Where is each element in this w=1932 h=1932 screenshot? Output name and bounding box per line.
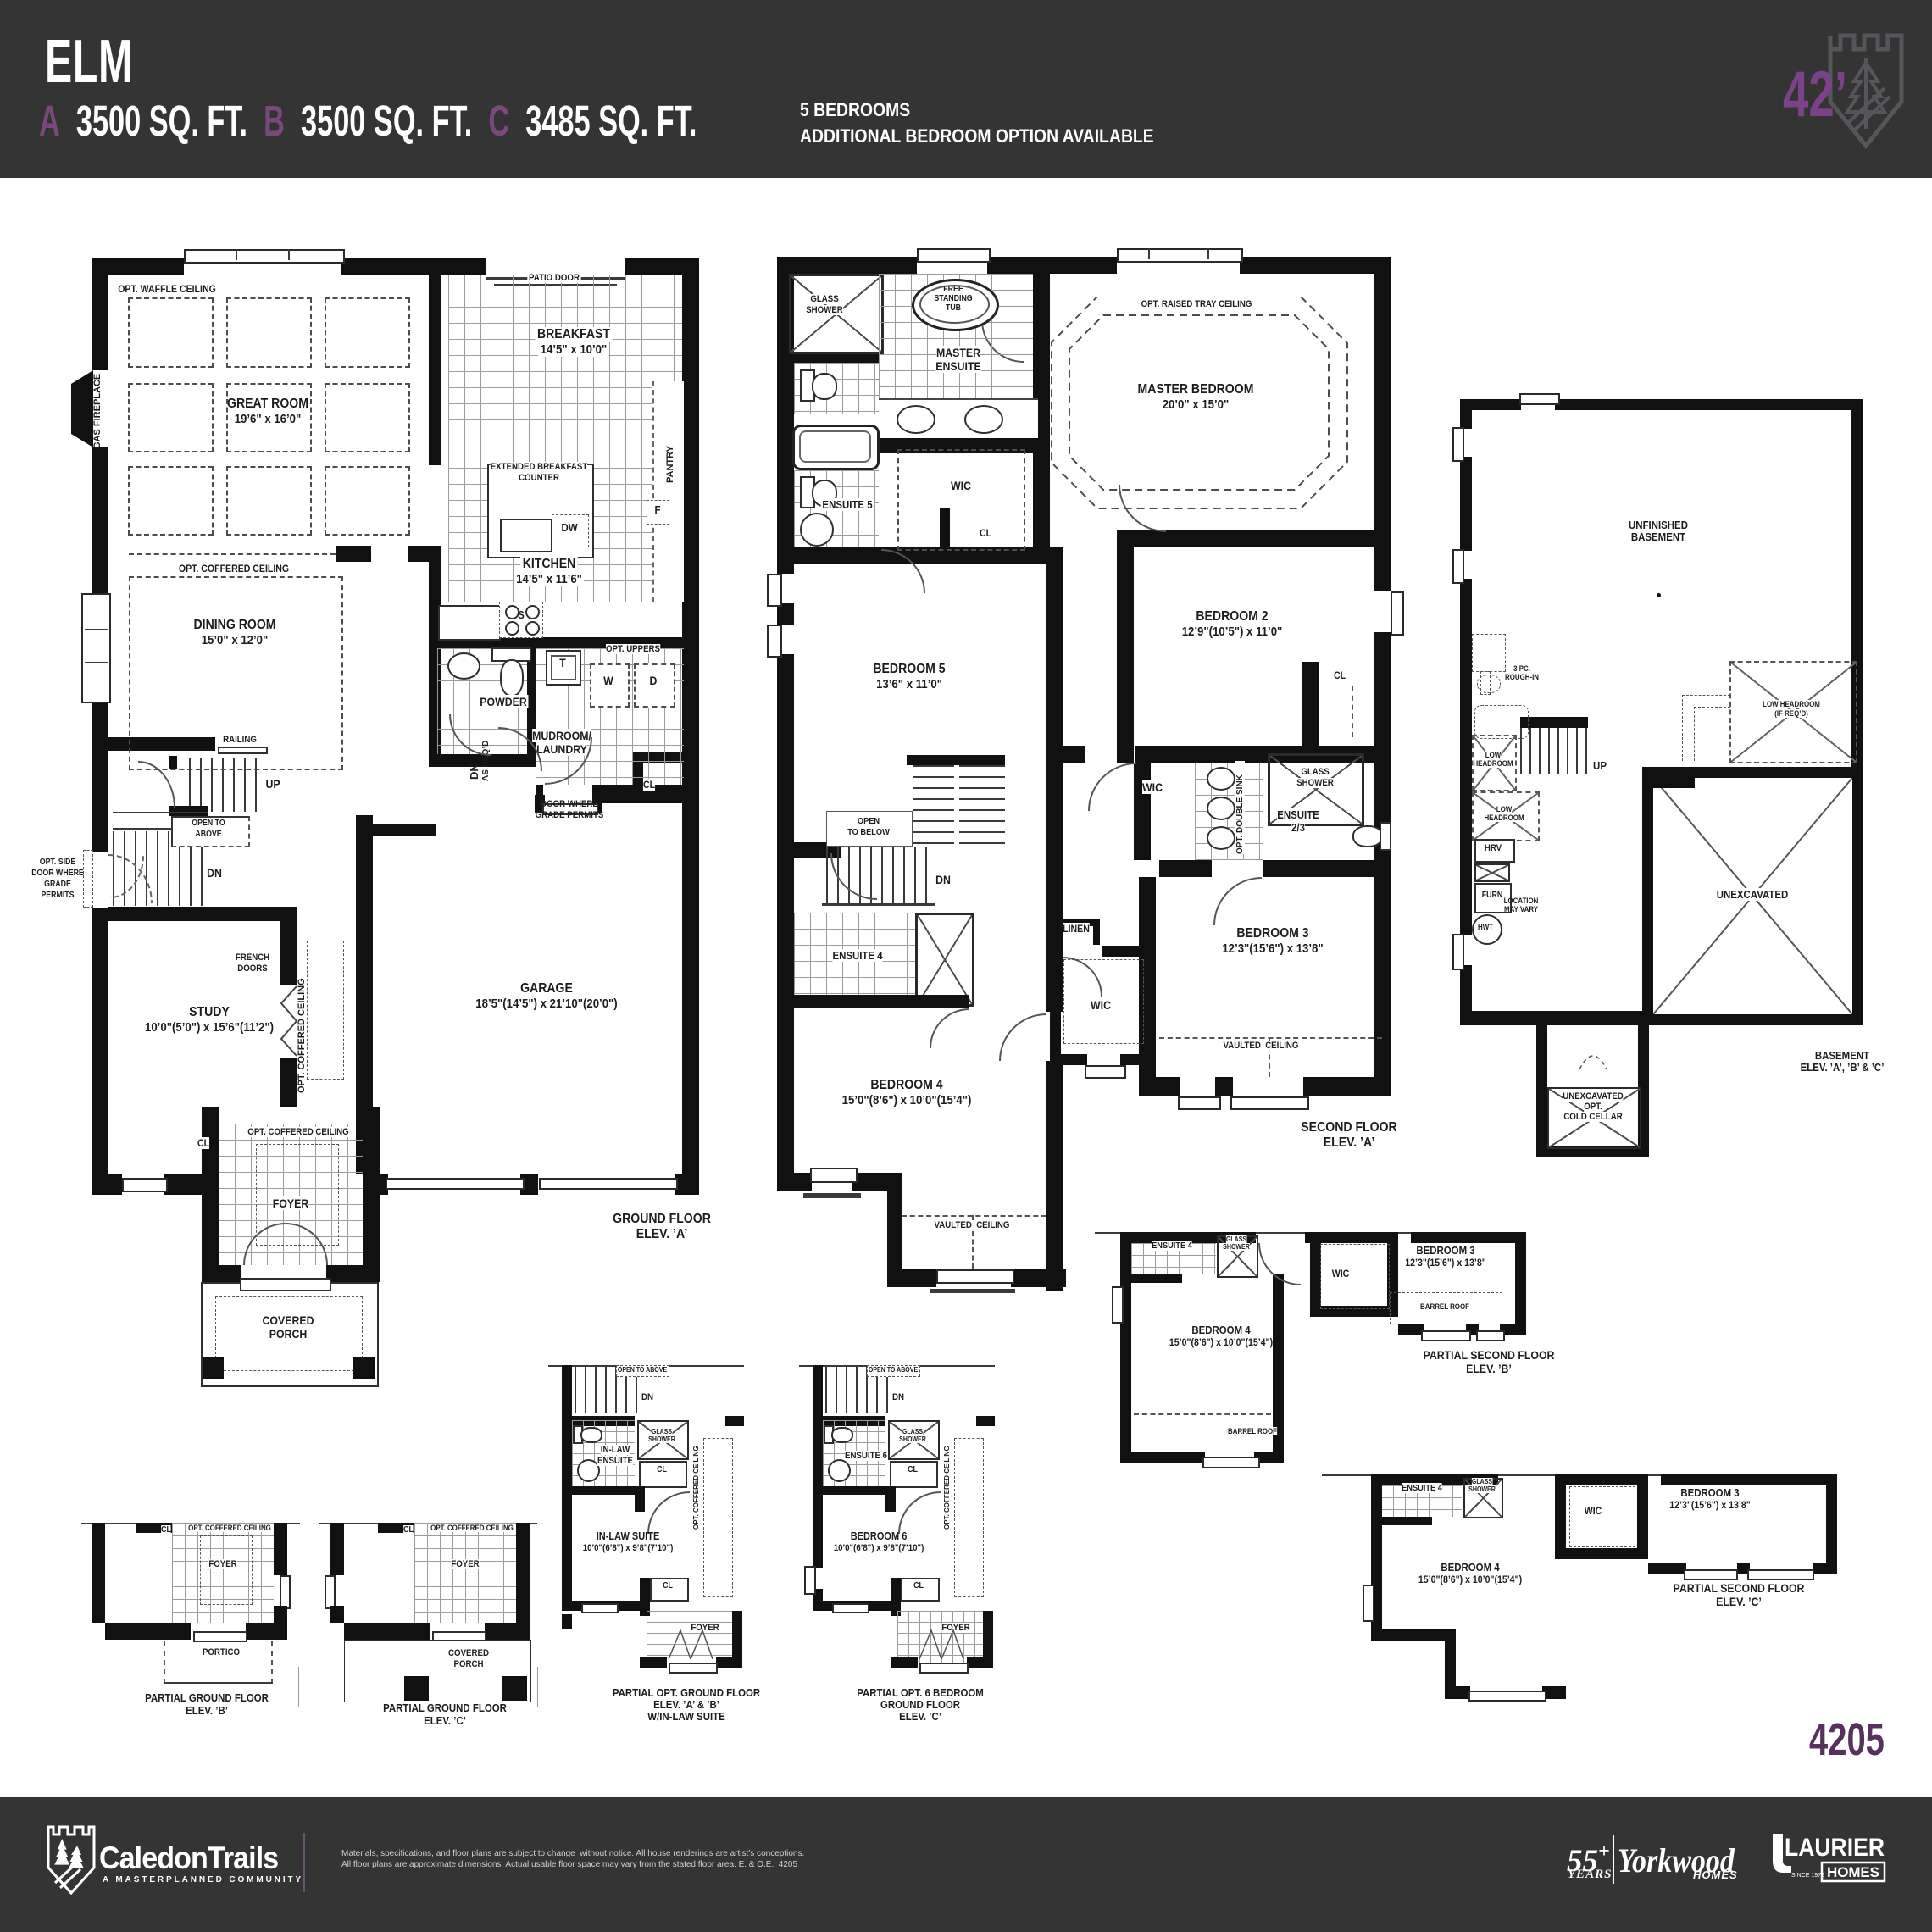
svg-text:HOMES: HOMES bbox=[1827, 1864, 1879, 1880]
svg-text:SINCE 1976: SINCE 1976 bbox=[1791, 1873, 1824, 1879]
svg-text:LAURIER: LAURIER bbox=[1785, 1834, 1885, 1862]
